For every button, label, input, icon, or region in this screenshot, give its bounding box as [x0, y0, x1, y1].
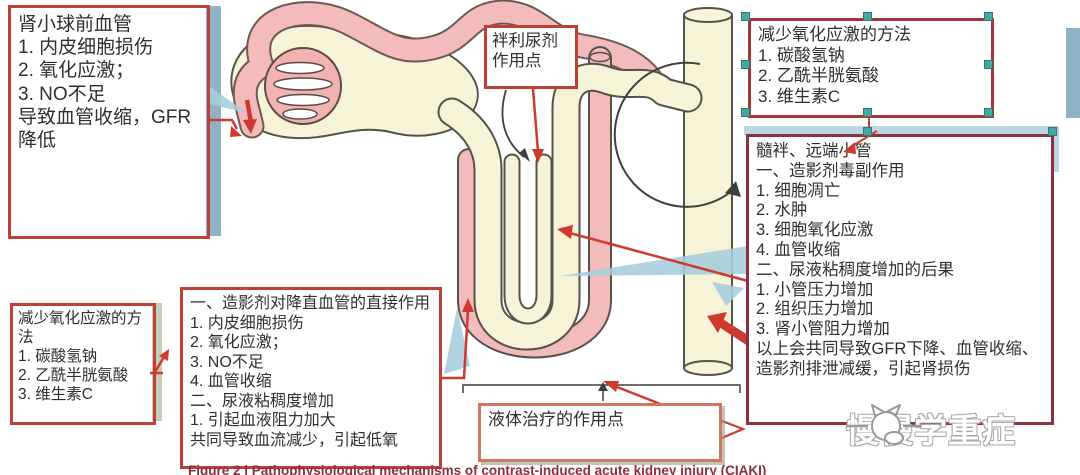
loop-of-henle-distal-tubule [452, 77, 688, 336]
annotation-line: 减少氧化应激的方法 [758, 25, 984, 46]
annotation-line: 2. 水肿 [756, 201, 1044, 221]
selection-handle[interactable] [741, 12, 750, 21]
annotation-box-contrast-vasa-recta-effect[interactable]: 一、造影剂对降直血管的直接作用 1. 内皮细胞损伤 2. 氧化应激； 3. NO… [180, 287, 442, 469]
cat-icon [846, 400, 924, 450]
annotation-line: 袢利尿剂 [492, 31, 570, 51]
annotation-box-reduce-oxidative-stress-top[interactable]: 减少氧化应激的方法 1. 碳酸氢钠 2. 乙酰半胱氨酸 3. 维生素C [748, 18, 994, 118]
selection-handle[interactable] [863, 108, 872, 117]
annotation-line: 1. 碳酸氢钠 [18, 348, 148, 367]
annotation-box-reduce-oxidative-stress-bottom[interactable]: 减少氧化应激的方法 1. 碳酸氢钠 2. 乙酰半胱氨酸 3. 维生素C [10, 303, 156, 425]
selection-handle[interactable] [741, 60, 750, 69]
selection-handle[interactable] [984, 12, 993, 21]
annotation-line: 3. NO不足 [190, 353, 432, 373]
annotation-line: 2. 乙酰半胱氨酸 [758, 66, 984, 87]
annotation-line: 4. 血管收缩 [756, 241, 1044, 261]
annotation-line: 2. 氧化应激； [18, 59, 200, 82]
annotation-line: 二、尿液粘稠度增加 [190, 392, 432, 412]
annotation-box-preglomerular-vessels[interactable]: 肾小球前血管 1. 内皮细胞损伤 2. 氧化应激； 3. NO不足 导致血管收缩… [8, 5, 210, 239]
annotation-line: 1. 内皮细胞损伤 [190, 314, 432, 334]
annotation-box-fluid-therapy-site[interactable]: 液体治疗的作用点 [478, 403, 722, 462]
annotation-line: 作用点 [492, 51, 570, 71]
annotation-line: 1. 细胞凋亡 [756, 182, 1044, 202]
annotation-line: 导致血管收缩，GFR降低 [18, 106, 200, 152]
steel-bar-topright [1066, 28, 1080, 118]
annotation-line: 髓袢、远端小管 [756, 142, 1044, 162]
annotation-line: 3. NO不足 [18, 83, 200, 106]
figure-caption: Figure 2 | Pathophysiological mechanisms… [188, 463, 766, 475]
annotation-line: 以上会共同导致GFR下降、血管收缩、造影剂排泄减缓，引起肾损伤 [756, 340, 1044, 380]
annotation-line: 二、尿液粘稠度增加的后果 [756, 261, 1044, 281]
selection-handle[interactable] [863, 12, 872, 21]
annotation-line: 4. 血管收缩 [190, 372, 432, 392]
diagram-page: 肾小球前血管 1. 内皮细胞损伤 2. 氧化应激； 3. NO不足 导致血管收缩… [0, 0, 1080, 475]
thin-limb [512, 162, 544, 316]
glomerulus [265, 48, 341, 124]
annotation-line: 3. 细胞氧化应激 [756, 221, 1044, 241]
annotation-line: 3. 维生素C [758, 87, 984, 108]
annotation-box-loop-diuretic-site[interactable]: 袢利尿剂 作用点 [484, 25, 578, 89]
selection-handle[interactable] [984, 60, 993, 69]
selection-handle[interactable] [984, 108, 993, 117]
annotation-box-medullary-loop-distal-tubule[interactable]: 髓袢、远端小管 一、造影剂毒副作用 1. 细胞凋亡 2. 水肿 3. 细胞氧化应… [746, 134, 1054, 425]
annotation-line: 2. 组织压力增加 [756, 300, 1044, 320]
selection-handle[interactable] [863, 127, 872, 136]
annotation-line: 共同导致血流减少，引起低氧 [190, 431, 432, 451]
annotation-line: 减少氧化应激的方法 [18, 310, 148, 348]
watermark: 慢慢学重症 [846, 400, 1080, 456]
selection-handle[interactable] [741, 108, 750, 117]
annotation-line: 一、造影剂毒副作用 [756, 162, 1044, 182]
annotation-line: 1. 引起血液阻力加大 [190, 411, 432, 431]
annotation-line: 1. 碳酸氢钠 [758, 46, 984, 67]
annotation-line: 1. 内皮细胞损伤 [18, 36, 200, 59]
annotation-line: 2. 氧化应激； [190, 333, 432, 353]
collecting-duct [684, 8, 732, 375]
selection-handle[interactable] [1048, 127, 1057, 136]
annotation-line: 一、造影剂对降直血管的直接作用 [190, 294, 432, 314]
annotation-line: 3. 肾小管阻力增加 [756, 320, 1044, 340]
annotation-line: 3. 维生素C [18, 386, 148, 405]
annotation-line: 1. 小管压力增加 [756, 281, 1044, 301]
annotation-line: 液体治疗的作用点 [488, 410, 712, 431]
annotation-line: 2. 乙酰半胱氨酸 [18, 367, 148, 386]
annotation-line: 肾小球前血管 [18, 13, 200, 36]
